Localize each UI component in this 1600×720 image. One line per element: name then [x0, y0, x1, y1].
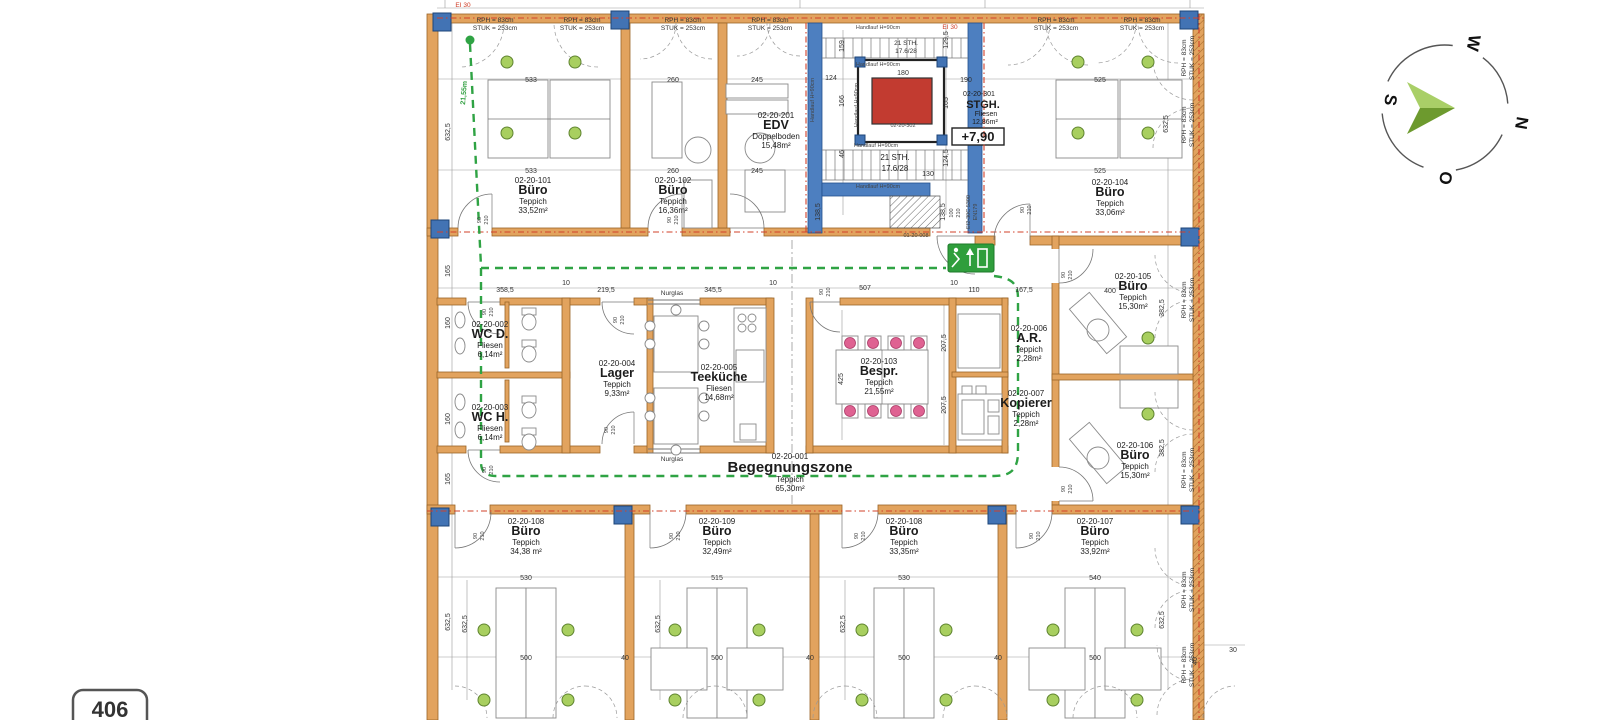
dimension-label: 40 [806, 655, 814, 662]
office-chair [1142, 408, 1154, 420]
door-width-label: 90 [854, 533, 860, 539]
door-width-label: 90 [477, 217, 483, 223]
kitchen-chair [699, 321, 709, 331]
door-height-label: 210 [620, 315, 626, 324]
room-id: 02-20-301 [963, 91, 995, 98]
door-height-label: 210 [480, 531, 486, 540]
room-area: 12,86m² [972, 119, 998, 126]
dimension-label: 382,5 [1159, 439, 1166, 457]
room-name: Büro [1080, 524, 1110, 538]
kitchen-chair [645, 321, 655, 331]
meeting-chair [868, 338, 879, 349]
dimension-label: 345,5 [704, 287, 722, 294]
dimension-label: 425 [838, 373, 845, 385]
door-width-label: 90 [669, 533, 675, 539]
meeting-chair [868, 406, 879, 417]
room-label: 02-20-108BüroTeppich34,38 m² [508, 517, 545, 556]
door-height-label: 210 [489, 307, 495, 316]
dimension-label: 632,5 [1159, 611, 1166, 629]
office-chair [501, 127, 513, 139]
room-finish: Teppich [512, 538, 540, 547]
dimension-label: 525 [1094, 77, 1106, 84]
kitchen-chair [699, 411, 709, 421]
swing-arc [842, 512, 878, 548]
room-area: 15,48m² [761, 141, 791, 150]
kitchen-chair [671, 305, 681, 315]
dimension-label: 166 [839, 95, 846, 107]
glass-wall-label: Nurglas [661, 456, 684, 463]
dimension-label: 500 [1089, 655, 1101, 662]
window-spec-line1: RPH = 83cm [563, 17, 600, 24]
room-finish: Fliesen [975, 111, 998, 118]
meeting-chair [845, 338, 856, 349]
room-area: 6,14m² [478, 350, 503, 359]
sheet-number-badge[interactable]: 406 [73, 690, 147, 720]
office-chair [856, 624, 868, 636]
room-name: Büro [889, 524, 919, 538]
room-name: Kopierer [1000, 396, 1052, 410]
office-chair [856, 694, 868, 706]
dimension-label: 632,5 [840, 615, 847, 633]
window-spec-line2: STUK = 253cm [1120, 25, 1164, 32]
fire-rating-label: EI 30 [455, 2, 471, 9]
office-chair [940, 624, 952, 636]
room-name: WC D. [472, 327, 509, 341]
stair-door-spec: EN179 [973, 204, 979, 221]
floor-plan-drawing: NOSW 406 02-20-101BüroTeppich33,52m²02-2… [0, 0, 1600, 720]
door-width-label: 90 [482, 467, 488, 473]
window-spec-line1: RPH = 83cm [1123, 17, 1160, 24]
office-chair [1047, 694, 1059, 706]
door-width-label: 90 [482, 309, 488, 315]
dimension-label: 180 [897, 70, 909, 77]
office-chair [569, 127, 581, 139]
room-label: 02-20-105BüroTeppich15,30m² [1115, 272, 1152, 311]
room-area: 32,49m² [702, 547, 732, 556]
handrail-label: Handlauf H=90cm [856, 62, 901, 68]
window-spec-line2: STUK = 253cm [1189, 103, 1196, 147]
dimension-label: 30 [1229, 647, 1237, 654]
side-table [727, 648, 783, 690]
meeting-chair [891, 338, 902, 349]
door-width-label: 90 [1020, 207, 1026, 213]
handrail-label: Handlauf H=90cm [810, 77, 816, 122]
office-chair [753, 694, 765, 706]
swing-arc [1483, 58, 1508, 104]
dimension-label: 260 [667, 168, 679, 175]
meeting-chair [845, 406, 856, 417]
room-finish: Teppich [865, 378, 893, 387]
room-name: Büro [1095, 185, 1125, 199]
dimension-label: 10 [562, 280, 570, 287]
room-area: 15,30m² [1120, 471, 1150, 480]
office-chair [753, 624, 765, 636]
office-chair [569, 56, 581, 68]
swing-arc [650, 512, 686, 548]
stair-flight-label: 21 STH. [894, 40, 918, 47]
room-label: 02-20-106BüroTeppich15,30m² [1117, 441, 1154, 480]
room-name: Büro [702, 524, 732, 538]
door-width-label: 90 [1061, 486, 1067, 492]
dimension-label: 500 [520, 655, 532, 662]
room-label: 02-20-004LagerTeppich9,33m² [599, 359, 636, 398]
dimension-label: 500 [898, 655, 910, 662]
compass-rose: NOSW [1380, 33, 1532, 186]
room-finish: Teppich [603, 380, 631, 389]
room-name: STGH. [966, 99, 1000, 111]
office-chair [1131, 624, 1143, 636]
room-area: 33,06m² [1095, 208, 1125, 217]
room-label: 02-20-103Bespr.Teppich21,55m² [860, 357, 898, 396]
stair-door-spec: EI2-30C 5300 [966, 195, 972, 229]
room-area: 14,68m² [704, 393, 734, 402]
door-height-label: 210 [674, 215, 680, 224]
window-spec-line1: RPH = 83cm [1181, 281, 1188, 318]
dimension-label: 207,5 [941, 396, 948, 414]
emergency-exit-sign [948, 244, 994, 272]
room-label: 02-20-104BüroTeppich33,06m² [1092, 178, 1129, 217]
compass-arrow-light [1407, 82, 1455, 108]
kitchen-chair [645, 411, 655, 421]
dimension-label: 219,5 [597, 287, 615, 294]
room-finish: Fliesen [477, 424, 503, 433]
room-label: 02-20-002WC D.Fliesen6,14m² [472, 320, 509, 359]
dimension-label: 533 [525, 77, 537, 84]
dimension-label: 159 [839, 40, 846, 52]
dimension-label: 40 [621, 655, 629, 662]
dimension-label: 245 [751, 168, 763, 175]
door-width-label: 90 [613, 317, 619, 323]
dimension-label: 40 [994, 655, 1002, 662]
dimension-label: 10 [950, 280, 958, 287]
meeting-chair [914, 338, 925, 349]
dimension-label: 632,5 [655, 615, 662, 633]
office-chair [940, 694, 952, 706]
dimension-label: 165 [445, 265, 452, 277]
room-area: 9,33m² [605, 389, 630, 398]
room-finish: Teppich [776, 475, 804, 484]
floor-plan-sheet: NOSW 406 02-20-101BüroTeppich33,52m²02-2… [0, 0, 1600, 720]
office-chair [669, 624, 681, 636]
dimension-label: 507 [859, 285, 871, 292]
kitchen-chair [645, 393, 655, 403]
room-label: 02-20-001BegegnungszoneTeppich65,30m² [727, 452, 852, 493]
door-width-label: 90 [473, 533, 479, 539]
window-spec-line1: RPH = 83cm [1181, 39, 1188, 76]
room-finish: Doppelboden [752, 132, 800, 141]
dimension-label: 515 [711, 575, 723, 582]
door-height-label: 210 [611, 425, 617, 434]
window-spec-line1: RPH = 83cm [1181, 571, 1188, 608]
swing-arc [1016, 512, 1052, 548]
room-finish: Teppich [1015, 345, 1043, 354]
dimension-label: 260 [667, 77, 679, 84]
office-chair [669, 694, 681, 706]
door-width-label: 90 [667, 217, 673, 223]
kitchen-chair [699, 339, 709, 349]
swing-arc [455, 512, 491, 548]
office-chair [562, 624, 574, 636]
room-area: 6,14m² [478, 433, 503, 442]
window-spec-line2: STUK = 253cm [1189, 568, 1196, 612]
door-width-label: 90 [604, 427, 610, 433]
room-area: 33,52m² [518, 206, 548, 215]
window-spec-line2: STUK = 253cm [560, 25, 604, 32]
dimension-label: 632,5 [1163, 115, 1170, 133]
handrail-label: Handlauf H=90cm [854, 143, 899, 149]
dimension-label: 130 [922, 171, 934, 178]
window-spec-line1: RPH = 83cm [751, 17, 788, 24]
sheet-number: 406 [92, 697, 129, 720]
dimension-label: 160 [445, 413, 452, 425]
meeting-chair [891, 406, 902, 417]
room-area: 2,28m² [1014, 419, 1039, 428]
dimension-label: 530 [898, 575, 910, 582]
side-table [1105, 648, 1161, 690]
stair-door-height: 210 [956, 208, 962, 217]
window-spec-line1: RPH = 83cm [664, 17, 701, 24]
window-spec-line2: STUK = 253cm [473, 25, 517, 32]
dimension-label: 632,5 [445, 123, 452, 141]
handrail-label: Handlauf H=90cm [854, 82, 860, 127]
dimension-label: 632,5 [445, 613, 452, 631]
window-spec-line2: STUK = 253cm [1034, 25, 1078, 32]
dimension-label: 138,5 [815, 203, 822, 221]
window-spec-line1: RPH = 83cm [476, 17, 513, 24]
dimension-label: 110 [968, 287, 979, 294]
office-chair [1072, 127, 1084, 139]
room-area: 16,36m² [658, 206, 688, 215]
dimension-label: 167,5 [1015, 287, 1033, 294]
room-name: EDV [763, 118, 789, 132]
office-chair [1131, 694, 1143, 706]
handrail-label: Handlauf H=90cm [856, 184, 901, 190]
room-label: 02-20-109BüroTeppich32,49m² [699, 517, 736, 556]
swing-arc [1388, 45, 1453, 81]
office-chair [501, 56, 513, 68]
stair-flight-label: 17.6/28 [882, 164, 909, 173]
room-finish: Teppich [519, 197, 547, 206]
dimension-label: 540 [1089, 575, 1101, 582]
side-table [651, 648, 707, 690]
door-height-label: 210 [861, 531, 867, 540]
dimension-label: 207,5 [941, 334, 948, 352]
office-chair [1047, 624, 1059, 636]
room-area: 2,28m² [1017, 354, 1042, 363]
compass-o: O [1435, 170, 1456, 186]
swing-arc [1456, 135, 1502, 170]
dimension-label: 40 [1192, 657, 1199, 665]
dimension-label: 138,5 [940, 203, 947, 221]
room-area: 34,38 m² [510, 547, 542, 556]
side-table [1029, 648, 1085, 690]
room-name: Büro [1120, 448, 1150, 462]
swing-arc [810, 302, 840, 332]
stair-flight-label: 21 STH. [880, 153, 909, 162]
dimension-label: 190 [960, 77, 972, 84]
room-name: Büro [511, 524, 541, 538]
dimension-label: 245 [751, 77, 763, 84]
door-height-label: 210 [1036, 531, 1042, 540]
dimension-label: 10 [769, 280, 777, 287]
dimension-label: 500 [711, 655, 723, 662]
kitchen-chair [671, 445, 681, 455]
swing-arc [585, 686, 617, 718]
office-chair [1142, 56, 1154, 68]
fire-rating-label: EI 30 [942, 24, 958, 31]
window-spec-line2: STUK = 253cm [1189, 36, 1196, 80]
window-spec-line2: STUK = 253cm [748, 25, 792, 32]
room-area: 15,30m² [1118, 302, 1148, 311]
door-width-label: 90 [1029, 533, 1035, 539]
room-area: 33,92m² [1080, 547, 1110, 556]
room-name: Begegnungszone [727, 459, 852, 476]
kitchen-chair [645, 339, 655, 349]
dimension-label: 165 [445, 473, 452, 485]
escape-route-length: 21,55m [460, 81, 469, 105]
room-name: Lager [600, 366, 634, 380]
dimension-label: 382,5 [1159, 299, 1166, 317]
compass-n: N [1511, 115, 1532, 130]
swing-arc [1059, 467, 1093, 501]
office-chair [1142, 127, 1154, 139]
glass-wall-label: Nurglas [661, 290, 684, 297]
room-label: 02-20-108BüroTeppich33,35m² [886, 517, 923, 556]
handrail-label: Handlauf H=90cm [856, 25, 901, 31]
room-finish: Teppich [703, 538, 731, 547]
room-name: Bespr. [860, 364, 898, 378]
dimension-label: 160 [445, 317, 452, 329]
dimension-label: 165 [943, 97, 950, 109]
compass-w: W [1463, 33, 1485, 53]
room-name: Büro [658, 183, 688, 197]
window-spec-line2: STUK = 253cm [661, 25, 705, 32]
door-height-label: 210 [1068, 484, 1074, 493]
room-area: 65,30m² [775, 484, 805, 493]
window-spec-line1: RPH = 83cm [1181, 646, 1188, 683]
room-label: 02-20-102BüroTeppich16,36m² [655, 176, 692, 215]
level-marker: +7,90 [962, 129, 995, 144]
meeting-chair [914, 406, 925, 417]
room-label: 02-20-003WC H.Fliesen6,14m² [472, 403, 509, 442]
office-chair [478, 624, 490, 636]
swing-arc [468, 450, 500, 482]
stair-door-id: 01-20-008 [903, 233, 928, 239]
door-height-label: 210 [1068, 270, 1074, 279]
door-height-label: 210 [1027, 205, 1033, 214]
stair-flight-label: 17.6/28 [895, 48, 917, 55]
dimension-label: 46 [839, 150, 846, 158]
room-finish: Teppich [659, 197, 687, 206]
dimension-label: 530 [520, 575, 532, 582]
office-chair [478, 694, 490, 706]
stair-door-width: 100 [949, 208, 955, 217]
desk [904, 588, 934, 718]
window-spec-line2: STUK = 253cm [1189, 278, 1196, 322]
dimension-label: 400 [1104, 288, 1116, 295]
room-name: A.R. [1017, 331, 1042, 345]
door-width-label: 90 [819, 289, 825, 295]
door-height-label: 210 [826, 287, 832, 296]
office-chair [1142, 332, 1154, 344]
room-finish: Teppich [1096, 199, 1124, 208]
room-finish: Teppich [890, 538, 918, 547]
office-chair [1072, 56, 1084, 68]
dimension-label: 525 [1094, 168, 1106, 175]
office-chair [562, 694, 574, 706]
room-label: 02-20-107BüroTeppich33,92m² [1077, 517, 1114, 556]
room-area: 33,35m² [889, 547, 919, 556]
room-name: WC H. [472, 410, 509, 424]
room-name: Büro [1118, 279, 1148, 293]
door-height-label: 210 [484, 215, 490, 224]
room-finish: Teppich [1121, 462, 1149, 471]
room-name: Büro [518, 183, 548, 197]
room-label: 02-20-006A.R.Teppich2,28m² [1011, 324, 1048, 363]
room-finish: Fliesen [706, 384, 732, 393]
dimension-label: 533 [525, 168, 537, 175]
room-finish: Teppich [1012, 410, 1040, 419]
dimension-label: 129,5 [943, 31, 950, 49]
room-label: 02-20-201EDVDoppelboden15,48m² [752, 111, 800, 150]
swing-arc [1203, 686, 1235, 718]
room-name: Teeküche [691, 370, 748, 384]
door-height-label: 210 [489, 465, 495, 474]
door-width-label: 90 [1061, 272, 1067, 278]
window-spec-line1: RPH = 83cm [1037, 17, 1074, 24]
desk [526, 588, 556, 718]
desk [874, 588, 904, 718]
window-spec-line1: RPH = 83cm [1181, 451, 1188, 488]
door-height-label: 210 [676, 531, 682, 540]
room-finish: Fliesen [477, 341, 503, 350]
window-spec-line1: RPH = 83cm [1181, 106, 1188, 143]
room-area: 21,55m² [864, 387, 894, 396]
dimension-label: 124,5 [943, 149, 950, 167]
room-finish: Teppich [1119, 293, 1147, 302]
compass-arrow-dark [1407, 108, 1455, 134]
desk [496, 588, 526, 718]
window-spec-line2: STUK = 253cm [1189, 448, 1196, 492]
shaft-id: 02-20-302 [890, 123, 915, 129]
room-label: 02-20-101BüroTeppich33,52m² [515, 176, 552, 215]
dimension-label: 124 [825, 75, 837, 82]
compass-s: S [1380, 93, 1401, 107]
room-finish: Teppich [1081, 538, 1109, 547]
dimension-label: 358,5 [496, 287, 514, 294]
dimension-label: 632,5 [462, 615, 469, 633]
